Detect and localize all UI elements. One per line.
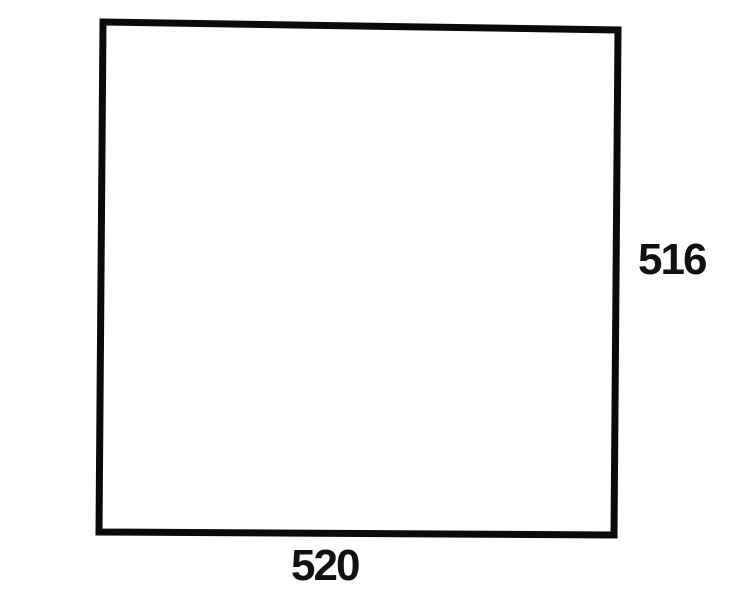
right-side-measurement-label: 516 [638,238,705,282]
quadrilateral-figure [0,0,750,600]
bottom-side-measurement-label: 520 [291,544,358,588]
square-outline [99,22,618,535]
diagram-canvas: 516 520 [0,0,750,600]
